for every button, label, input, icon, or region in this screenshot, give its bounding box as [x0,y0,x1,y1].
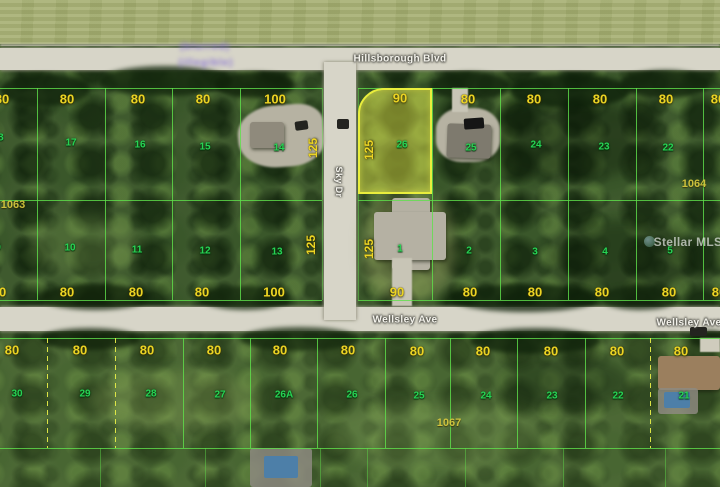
lot-number-2: 2 [466,246,472,257]
dim-label-80: 80 [73,343,87,358]
dim-label-80: 80 [544,344,558,359]
purple-watermark-line-2: (illegible) [179,58,234,69]
lot-line [358,200,720,201]
lot-line-dashed [115,338,116,448]
lot-number-11: 11 [132,245,143,256]
lot-line [183,338,184,448]
lot-number-13: 13 [271,247,282,258]
dim-label-80: 80 [60,285,74,300]
lot-line [105,88,106,300]
wellsley-ave-road [0,307,720,331]
block-number-1063: 1063 [1,199,25,211]
dim-label-80: 80 [461,92,475,107]
lot-line [665,448,666,487]
lot-line [0,200,322,201]
dim-label-80: 80 [207,343,221,358]
lot-line [100,448,101,487]
lot-number-26: 26 [346,390,357,401]
lot-number-4: 4 [602,247,608,258]
dim-label-80: 80 [674,344,688,359]
street-label-cross-vertical: Sky Dr [334,167,344,198]
dark-canopy-patch [500,355,630,410]
dim-label-80: 80 [528,285,542,300]
lot-line [0,448,720,449]
lot-number-21: 21 [678,391,689,402]
dim-label-80: 80 [60,92,74,107]
dim-label-80: 80 [662,285,676,300]
street-label-wellsley-ave-east: Wellsley Ave [656,318,720,329]
dim-label-80: 80 [273,343,287,358]
car-lot-25 [464,117,485,129]
car-on-cross-street [337,119,349,129]
aerial-parcel-map: 8080808010090808080808080808080100908080… [0,0,720,487]
dim-label-100: 100 [264,92,286,107]
lot-line [205,448,206,487]
street-label-hillsborough-blvd: Hillsborough Blvd [354,54,447,65]
dim-label-80: 80 [140,343,154,358]
dim-label-80: 80 [463,285,477,300]
dim-label-vertical-125: 125 [362,140,376,160]
lot-line [385,338,386,448]
lot-line [465,448,466,487]
house-lot-21 [658,356,720,390]
street-label-wellsley-ave: Wellsley Ave [372,315,437,326]
lot-number-25: 25 [465,143,476,154]
lot-number-12: 12 [199,246,210,257]
lot-number-22: 22 [662,143,673,154]
dim-label-80: 80 [0,285,6,300]
lot-line [358,300,720,301]
lot-number-1: 1 [397,244,403,255]
lot-number-25: 25 [413,391,424,402]
lot-line [563,448,564,487]
lot-number-16: 16 [134,140,145,151]
lot-number-18: 18 [0,133,4,144]
tree-clump [100,66,230,96]
lot-number-27: 27 [214,390,225,401]
lot-line [320,448,321,487]
purple-watermark-line-1: (blurred) [180,42,230,53]
lot-line [250,338,251,448]
dim-label-80: 80 [595,285,609,300]
light-brush-patch [30,215,140,275]
dark-canopy-patch [550,220,700,295]
lot-line [432,88,433,300]
lot-line [240,88,241,300]
lot-line [703,88,704,300]
stellar-mls-watermark: Stellar MLS [654,235,720,249]
dim-label-80: 80 [195,285,209,300]
pool-bottom-left [264,456,298,478]
dim-label-90: 90 [390,285,404,300]
lot-line [317,338,318,448]
lot-number-15: 15 [199,142,210,153]
lot-number-26: 26 [396,140,407,151]
tree-clump [40,328,140,350]
lot-line [450,338,451,448]
lot-line [0,300,322,301]
lot-number-24: 24 [530,140,541,151]
lot-number-30: 30 [11,389,22,400]
lot-number-26a: 26A [275,390,293,401]
dim-label-80: 80 [610,344,624,359]
lot-number-28: 28 [145,389,156,400]
mowed-field [0,0,720,44]
dim-label-80: 80 [341,343,355,358]
dim-label-vertical-125: 125 [304,235,318,255]
dim-label-vertical-125: 125 [362,239,376,259]
light-brush-patch [330,400,540,470]
lot-line [0,338,720,339]
lot-number-9: 9 [0,243,1,254]
lot-number-29: 29 [79,389,90,400]
lot-number-23: 23 [598,142,609,153]
dim-label-80: 80 [659,92,673,107]
dim-label-80: 80 [131,92,145,107]
lot-line-dashed [47,338,48,448]
lot-line-dashed [650,338,651,448]
dim-label-80: 80 [476,344,490,359]
block-number-1064: 1064 [682,178,706,190]
dim-label-80: 80 [527,92,541,107]
lot-line [322,88,323,300]
lot-line [37,88,38,300]
dim-label-90: 90 [393,91,407,106]
dim-label-80: 80 [410,344,424,359]
tree-clump [0,74,90,106]
lot-number-22: 22 [612,391,623,402]
lot-line [500,88,501,300]
lot-line [636,88,637,300]
lot-line [585,338,586,448]
dim-label-80: 80 [5,343,19,358]
lot-number-14: 14 [273,143,284,154]
lot-number-23: 23 [546,391,557,402]
lot-line [0,88,322,89]
lot-number-17: 17 [65,138,76,149]
lot-line [568,88,569,300]
dim-label-80: 80 [129,285,143,300]
house-lot-1-main [374,212,446,260]
dim-label-80: 80 [196,92,210,107]
dim-label-80: 80 [712,285,720,300]
dim-label-vertical-125: 125 [306,138,320,158]
lot-number-24: 24 [480,391,491,402]
lot-line [172,88,173,300]
car-lot-14 [294,120,308,131]
dim-label-100: 100 [263,285,285,300]
dim-label-80: 80 [0,92,9,107]
dim-label-80: 80 [711,92,720,107]
dim-label-80: 80 [593,92,607,107]
lot-line [517,338,518,448]
dark-canopy-patch [480,100,660,180]
block-number-1067: 1067 [437,417,461,429]
driveway-lot-21 [700,338,720,352]
lot-number-10: 10 [64,243,75,254]
lot-line [367,448,368,487]
lot-number-3: 3 [532,247,538,258]
